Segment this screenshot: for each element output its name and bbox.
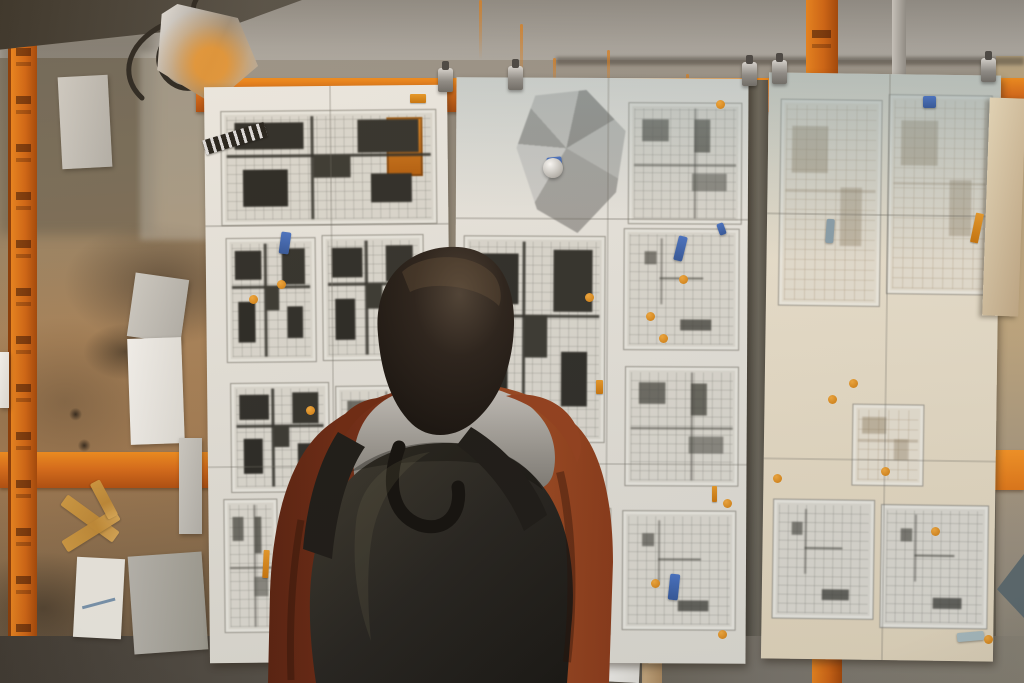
construction-site-photo: [0, 0, 1024, 683]
person-silhouette: [0, 0, 1024, 683]
